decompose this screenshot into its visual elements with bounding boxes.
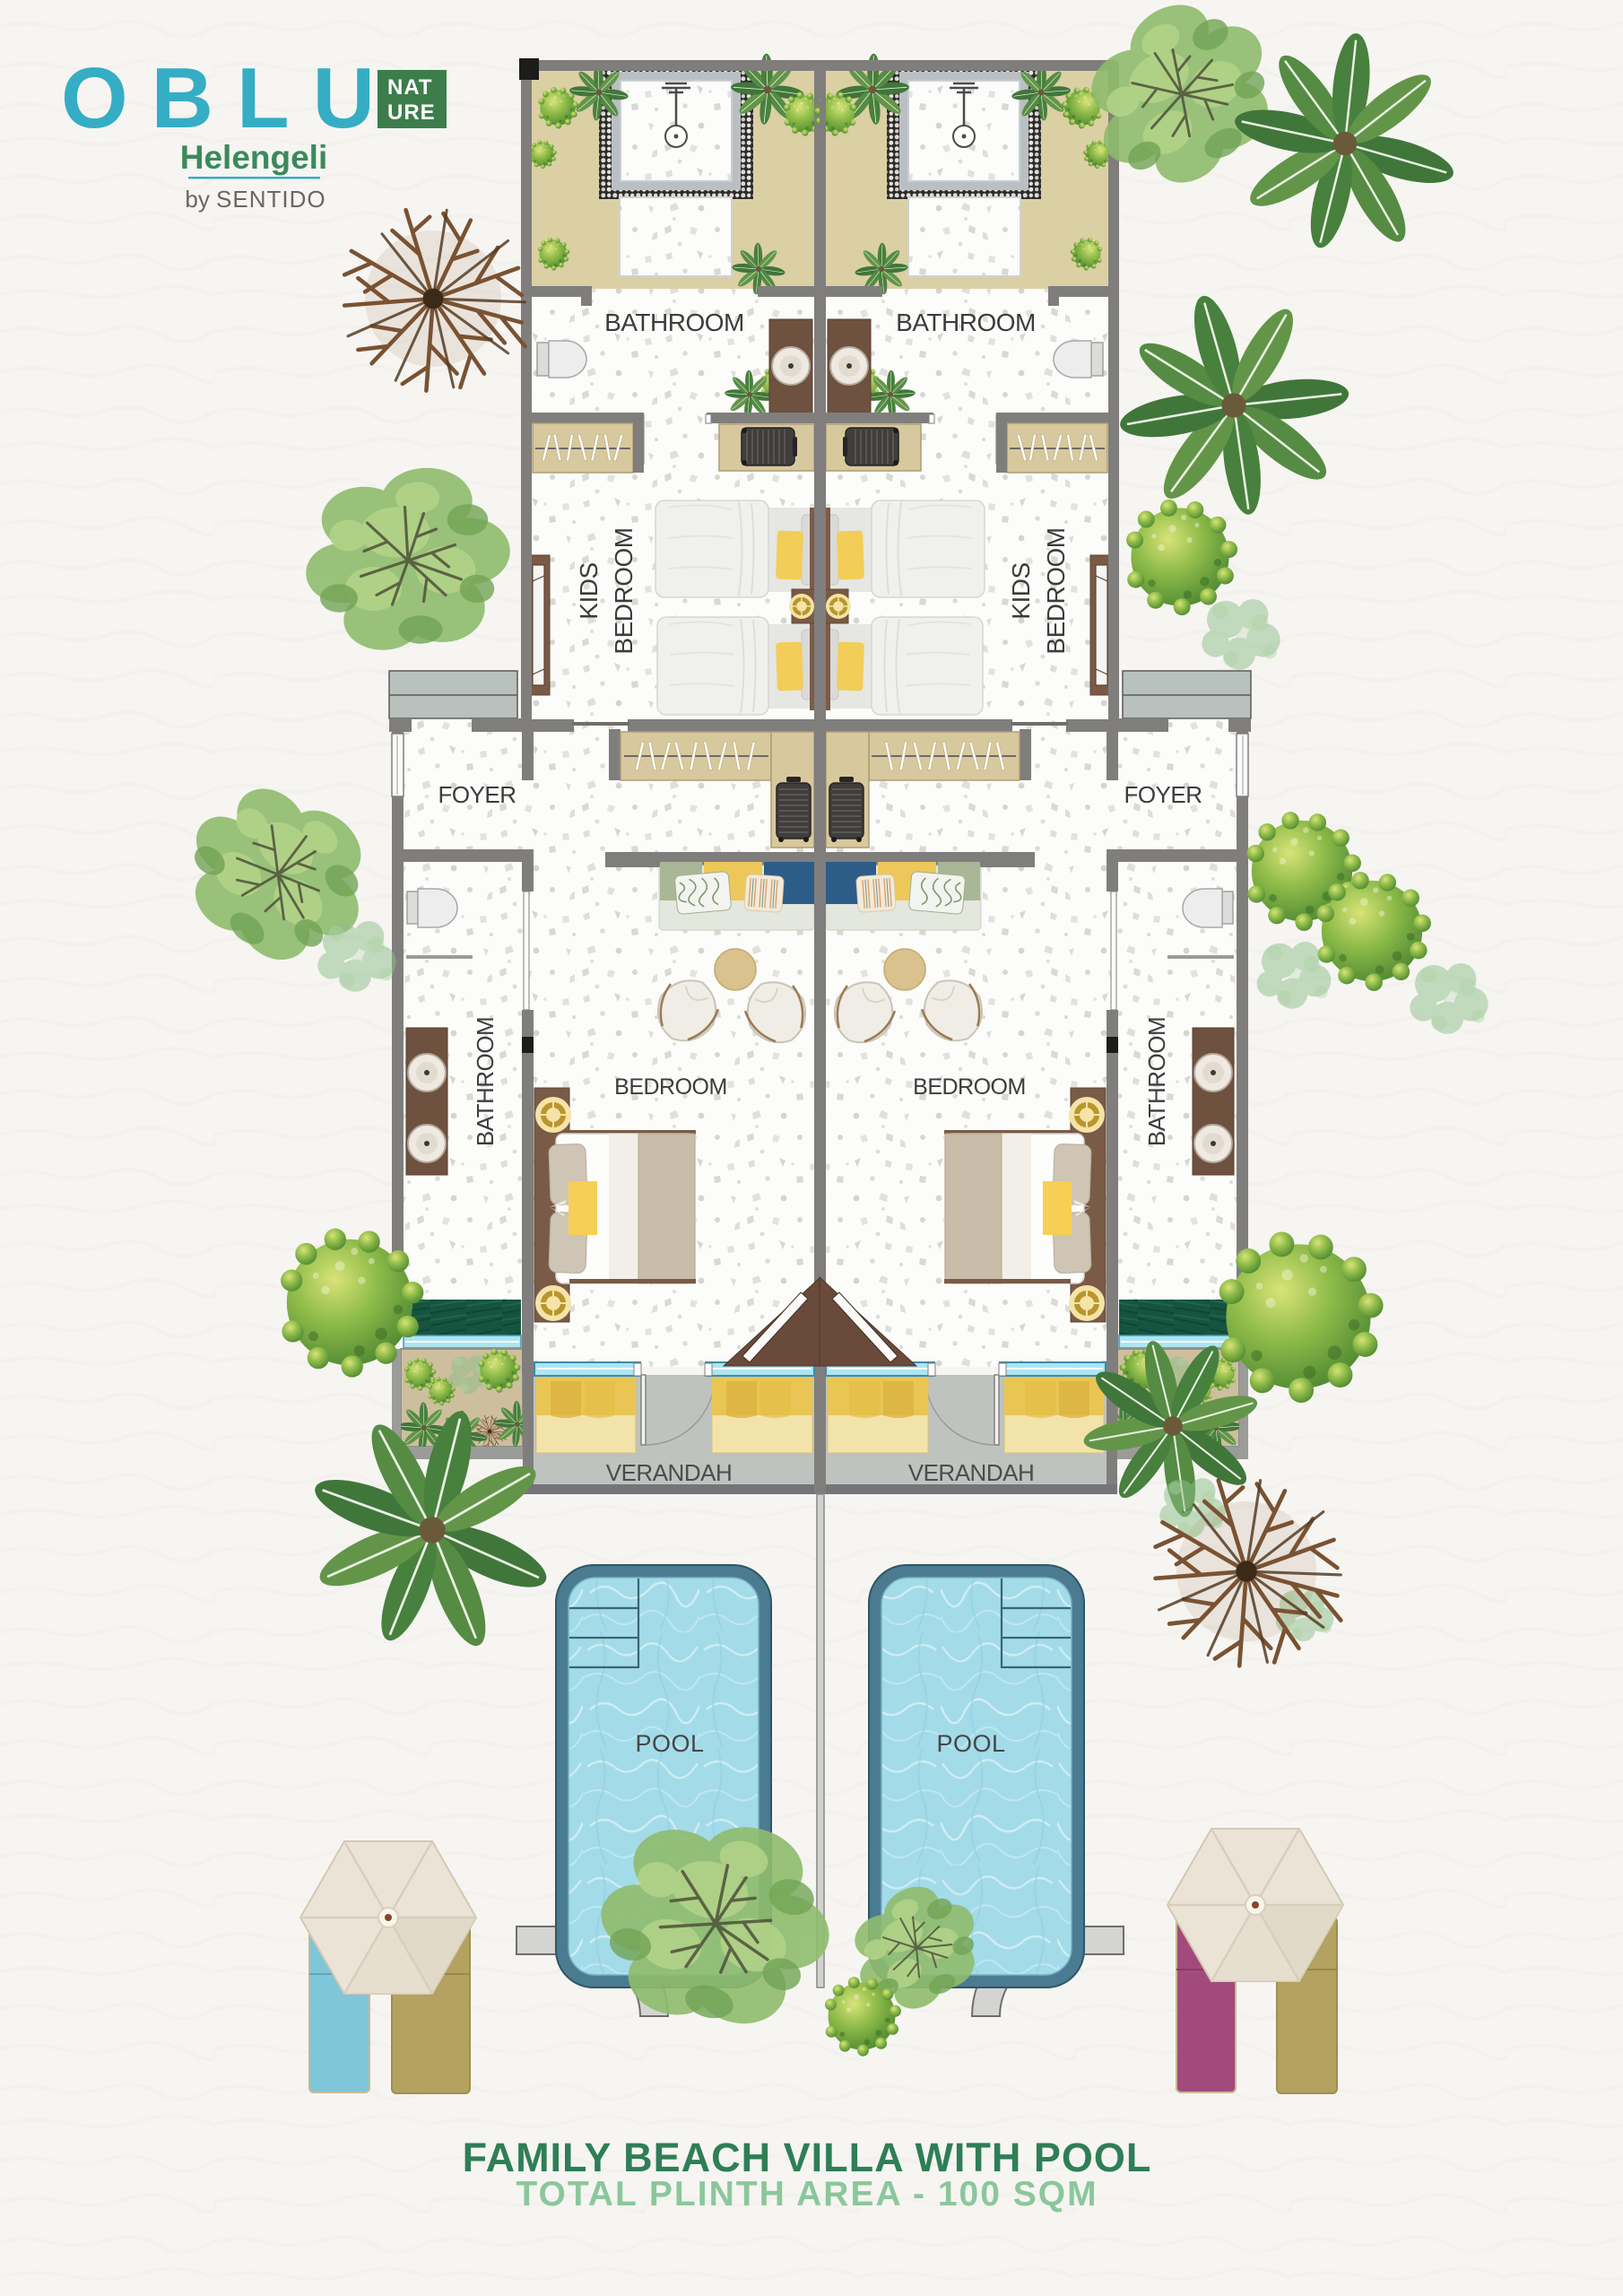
svg-text:by SENTIDO: by SENTIDO xyxy=(185,186,325,213)
svg-text:FOYER: FOYER xyxy=(438,781,516,808)
svg-text:BEDROOM: BEDROOM xyxy=(913,1074,1026,1100)
svg-text:FOYER: FOYER xyxy=(1124,781,1202,808)
svg-text:NAT: NAT xyxy=(387,75,433,100)
svg-text:VERANDAH: VERANDAH xyxy=(908,1459,1034,1486)
svg-text:Helengeli: Helengeli xyxy=(180,139,328,176)
svg-text:VERANDAH: VERANDAH xyxy=(606,1459,732,1486)
svg-text:POOL: POOL xyxy=(635,1730,704,1757)
svg-text:KIDS: KIDS xyxy=(1007,562,1035,619)
svg-text:BATHROOM: BATHROOM xyxy=(604,309,744,336)
svg-text:FAMILY BEACH VILLA WITH POOL: FAMILY BEACH VILLA WITH POOL xyxy=(463,2135,1152,2180)
svg-text:TOTAL PLINTH AREA - 100 SQM: TOTAL PLINTH AREA - 100 SQM xyxy=(516,2175,1098,2213)
svg-text:OBLU: OBLU xyxy=(61,50,398,146)
svg-text:BEDROOM: BEDROOM xyxy=(1042,527,1070,654)
svg-text:BATHROOM: BATHROOM xyxy=(1143,1017,1170,1146)
svg-text:BATHROOM: BATHROOM xyxy=(472,1017,499,1146)
svg-text:KIDS: KIDS xyxy=(575,562,603,619)
svg-text:BATHROOM: BATHROOM xyxy=(896,309,1036,336)
svg-text:POOL: POOL xyxy=(936,1730,1005,1757)
svg-text:URE: URE xyxy=(387,100,436,125)
svg-text:BEDROOM: BEDROOM xyxy=(610,527,638,654)
svg-text:BEDROOM: BEDROOM xyxy=(614,1074,727,1100)
